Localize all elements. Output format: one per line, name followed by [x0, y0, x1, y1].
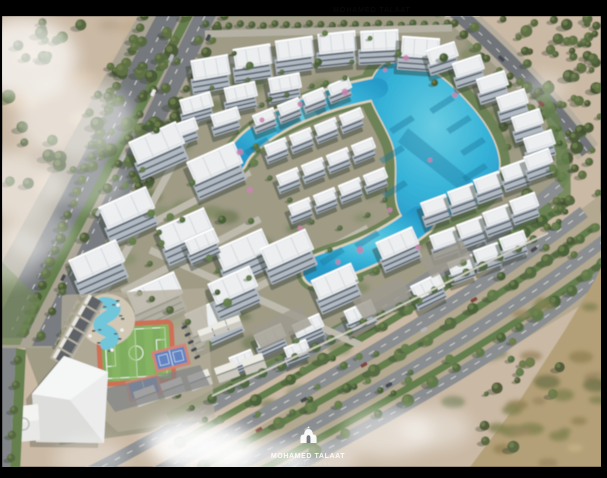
svg-text:MOHAMED TALAAT: MOHAMED TALAAT [271, 453, 345, 460]
svg-text:ARCHITECTURE: ARCHITECTURE [284, 461, 332, 466]
svg-text:MOHAMED TALAAT: MOHAMED TALAAT [333, 7, 411, 14]
